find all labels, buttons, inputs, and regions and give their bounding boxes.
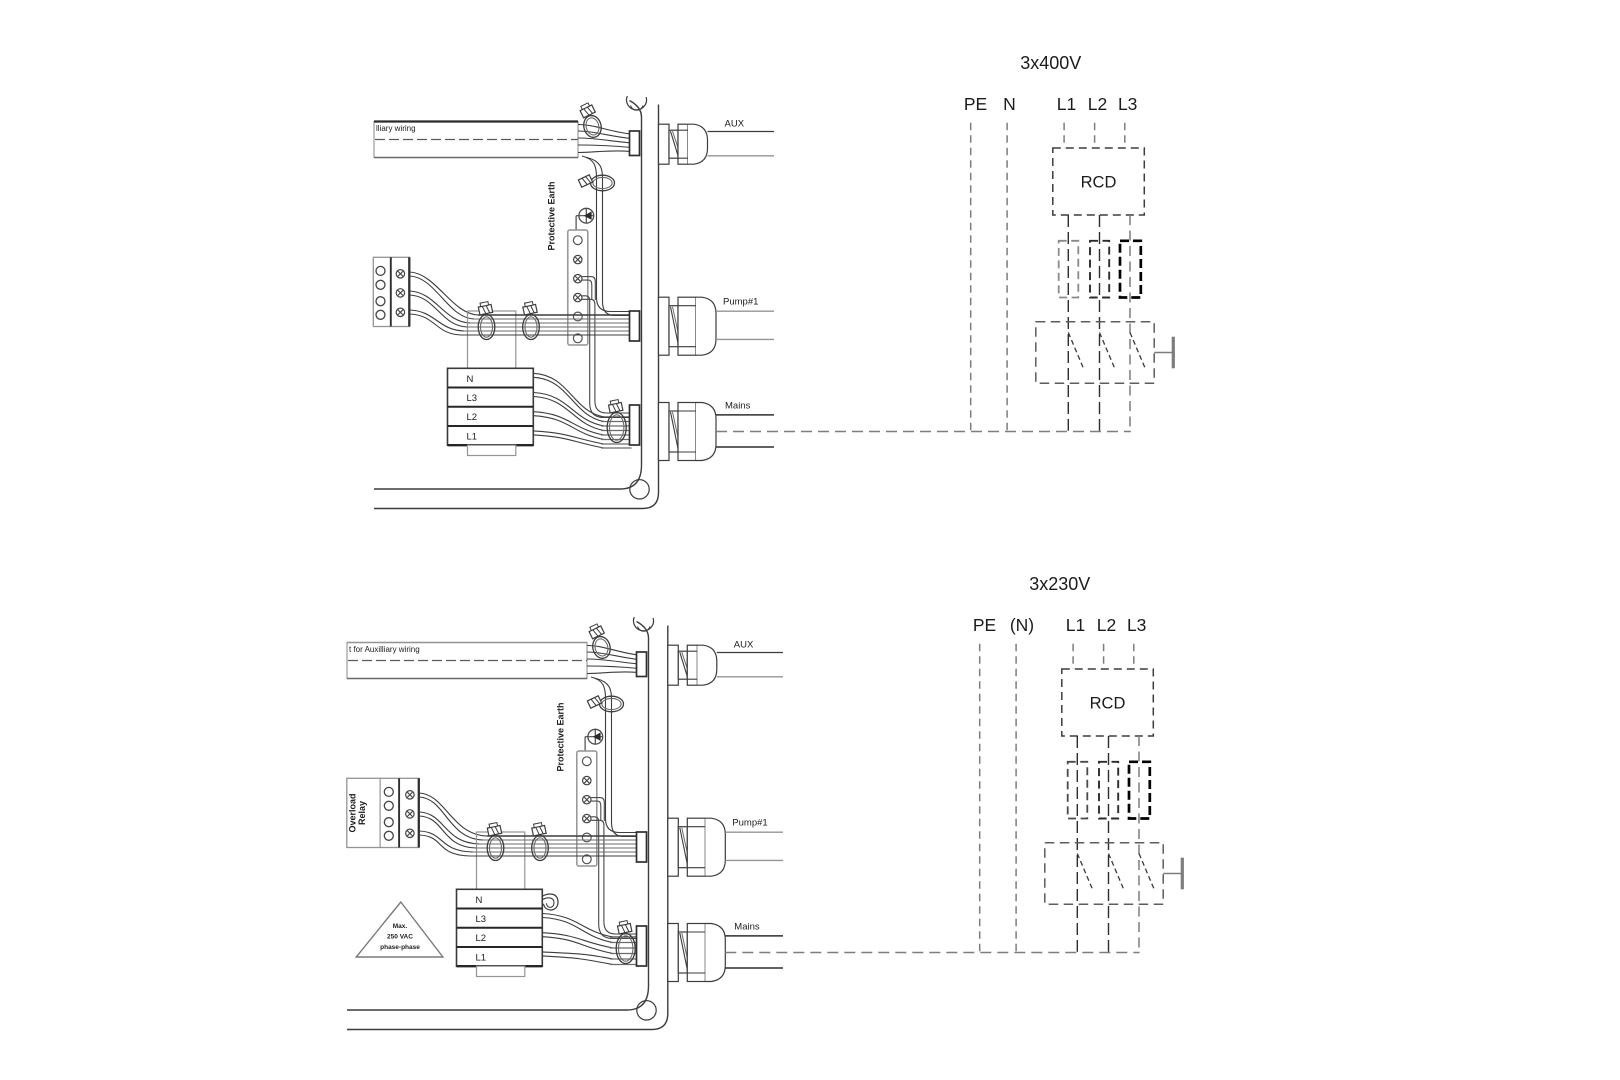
svg-text:3x230V: 3x230V	[1029, 574, 1090, 594]
svg-text:L2: L2	[467, 412, 478, 423]
svg-text:RCD: RCD	[1090, 695, 1126, 713]
svg-text:N: N	[467, 374, 474, 385]
svg-text:L2: L2	[1097, 615, 1116, 635]
svg-text:Relay: Relay	[357, 801, 367, 825]
svg-text:Mains: Mains	[725, 401, 751, 412]
svg-text:L3: L3	[476, 914, 487, 925]
svg-text:AUX: AUX	[725, 119, 745, 130]
svg-text:3x400V: 3x400V	[1020, 53, 1081, 73]
svg-text:N: N	[476, 895, 483, 906]
svg-text:PE: PE	[964, 94, 987, 114]
svg-text:Protective Earth: Protective Earth	[547, 181, 557, 250]
svg-text:L2: L2	[476, 933, 487, 944]
svg-text:N: N	[1003, 94, 1016, 114]
svg-text:PE: PE	[973, 615, 996, 635]
svg-text:Pump#1: Pump#1	[732, 817, 767, 828]
svg-text:RCD: RCD	[1081, 174, 1117, 192]
svg-text:Protective Earth: Protective Earth	[556, 702, 566, 771]
svg-text:L1: L1	[1057, 94, 1076, 114]
svg-text:L1: L1	[467, 431, 478, 442]
svg-text:L3: L3	[1127, 615, 1146, 635]
svg-text:L2: L2	[1088, 94, 1107, 114]
svg-text:Pump#1: Pump#1	[723, 296, 758, 307]
svg-text:lliary wiring: lliary wiring	[376, 124, 416, 133]
svg-text:Mains: Mains	[734, 922, 760, 933]
svg-text:phase-phase: phase-phase	[380, 944, 420, 951]
svg-text:L1: L1	[1066, 615, 1085, 635]
svg-text:t for Auxilliary wiring: t for Auxilliary wiring	[349, 645, 420, 654]
svg-text:(N): (N)	[1010, 615, 1034, 635]
svg-text:AUX: AUX	[734, 640, 754, 651]
svg-text:Max.: Max.	[393, 923, 408, 930]
svg-text:L3: L3	[467, 393, 478, 404]
svg-text:250 VAC: 250 VAC	[387, 934, 413, 941]
svg-text:Overload: Overload	[347, 793, 357, 832]
svg-text:L3: L3	[1118, 94, 1137, 114]
svg-text:L1: L1	[476, 952, 487, 963]
